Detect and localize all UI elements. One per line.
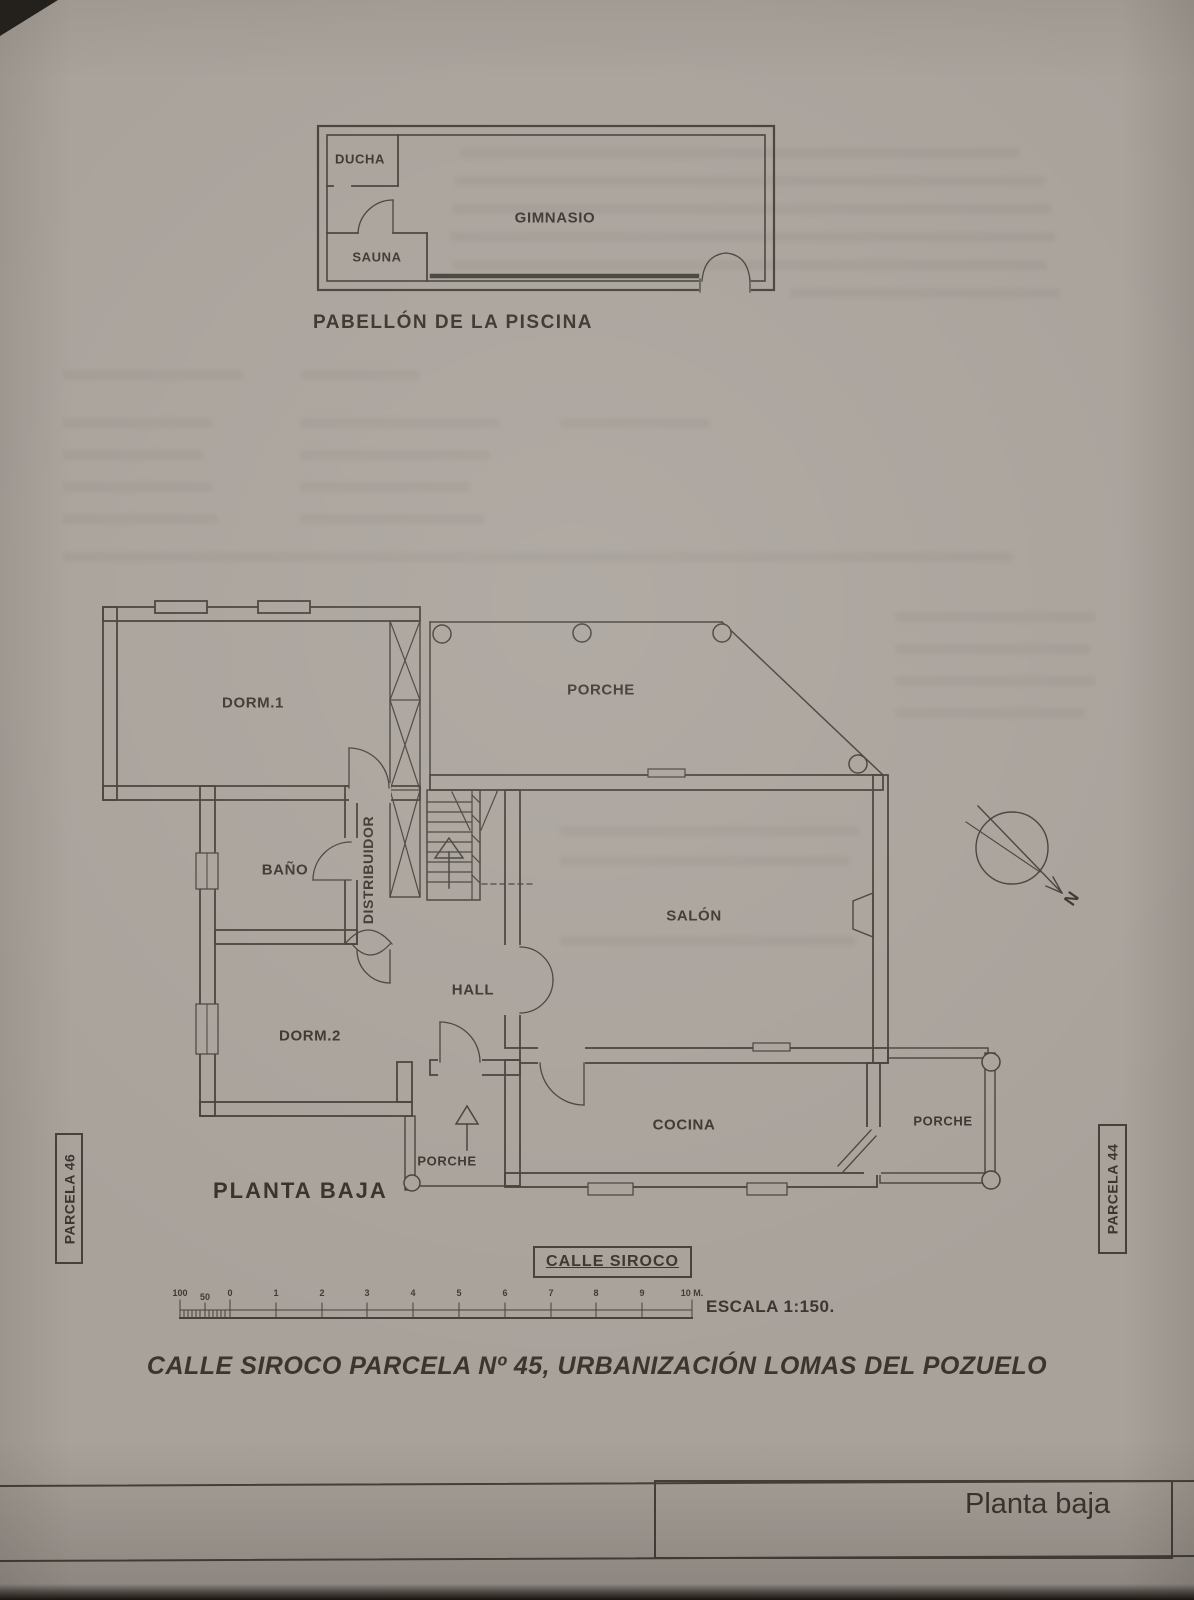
scale-tick: 3 — [364, 1288, 369, 1298]
scale-tick: 100 — [172, 1288, 187, 1298]
scale-tick: 1 — [273, 1288, 278, 1298]
room-label-hall: HALL — [452, 982, 494, 999]
pavilion-caption: PABELLÓN DE LA PISCINA — [313, 312, 593, 334]
room-label-porche-top: PORCHE — [567, 682, 635, 699]
scan-bottom-edge-artifact — [0, 1584, 1194, 1600]
scale-tick: 7 — [548, 1288, 553, 1298]
room-label-bano: BAÑO — [262, 862, 309, 879]
room-label-dorm2: DORM.2 — [279, 1028, 341, 1045]
scale-tick: 4 — [410, 1288, 415, 1298]
room-label-porche-entry: PORCHE — [417, 1154, 476, 1169]
door-openings — [343, 277, 881, 1175]
scale-tick: 5 — [456, 1288, 461, 1298]
floor-caption: PLANTA BAJA — [213, 1178, 388, 1204]
room-label-ducha: DUCHA — [335, 152, 385, 167]
street-label: CALLE SIROCO — [533, 1246, 692, 1278]
room-label-sauna: SAUNA — [352, 250, 401, 265]
room-label-distribuidor: DISTRIBUIDOR — [360, 816, 376, 924]
entry-arrow — [456, 1106, 478, 1150]
room-label-dorm1: DORM.1 — [222, 695, 284, 712]
scale-tick: 6 — [502, 1288, 507, 1298]
room-label-cocina: COCINA — [653, 1117, 716, 1134]
room-label-salon: SALÓN — [666, 908, 722, 925]
room-label-porche-right: PORCHE — [913, 1114, 972, 1129]
scale-text: ESCALA 1:150. — [706, 1297, 835, 1317]
scale-tick: 8 — [593, 1288, 598, 1298]
drawing-title: CALLE SIROCO PARCELA Nº 45, URBANIZACIÓN… — [147, 1352, 1047, 1381]
main-plan-walls — [103, 601, 995, 1195]
scale-tick: 10 M. — [681, 1288, 704, 1298]
sheet-name: Planta baja — [965, 1488, 1110, 1521]
parcel-left-text: PARCELA 46 — [61, 1153, 77, 1244]
scanned-floor-plan-page: { "document": { "paper_color": "#a9a29b"… — [0, 0, 1194, 1600]
scale-tick: 2 — [319, 1288, 324, 1298]
street-text: CALLE SIROCO — [546, 1253, 679, 1271]
room-label-gimnasio: GIMNASIO — [515, 210, 596, 227]
north-compass-icon — [966, 806, 1062, 893]
parcel-right-text: PARCELA 44 — [1105, 1144, 1121, 1235]
scale-tick: 9 — [639, 1288, 644, 1298]
scale-bar — [180, 1300, 692, 1318]
parcel-right-label: PARCELA 44 — [1098, 1124, 1127, 1254]
scale-tick: 0 — [227, 1288, 232, 1298]
scale-tick: 50 — [200, 1292, 210, 1302]
parcel-left-label: PARCELA 46 — [55, 1133, 83, 1264]
